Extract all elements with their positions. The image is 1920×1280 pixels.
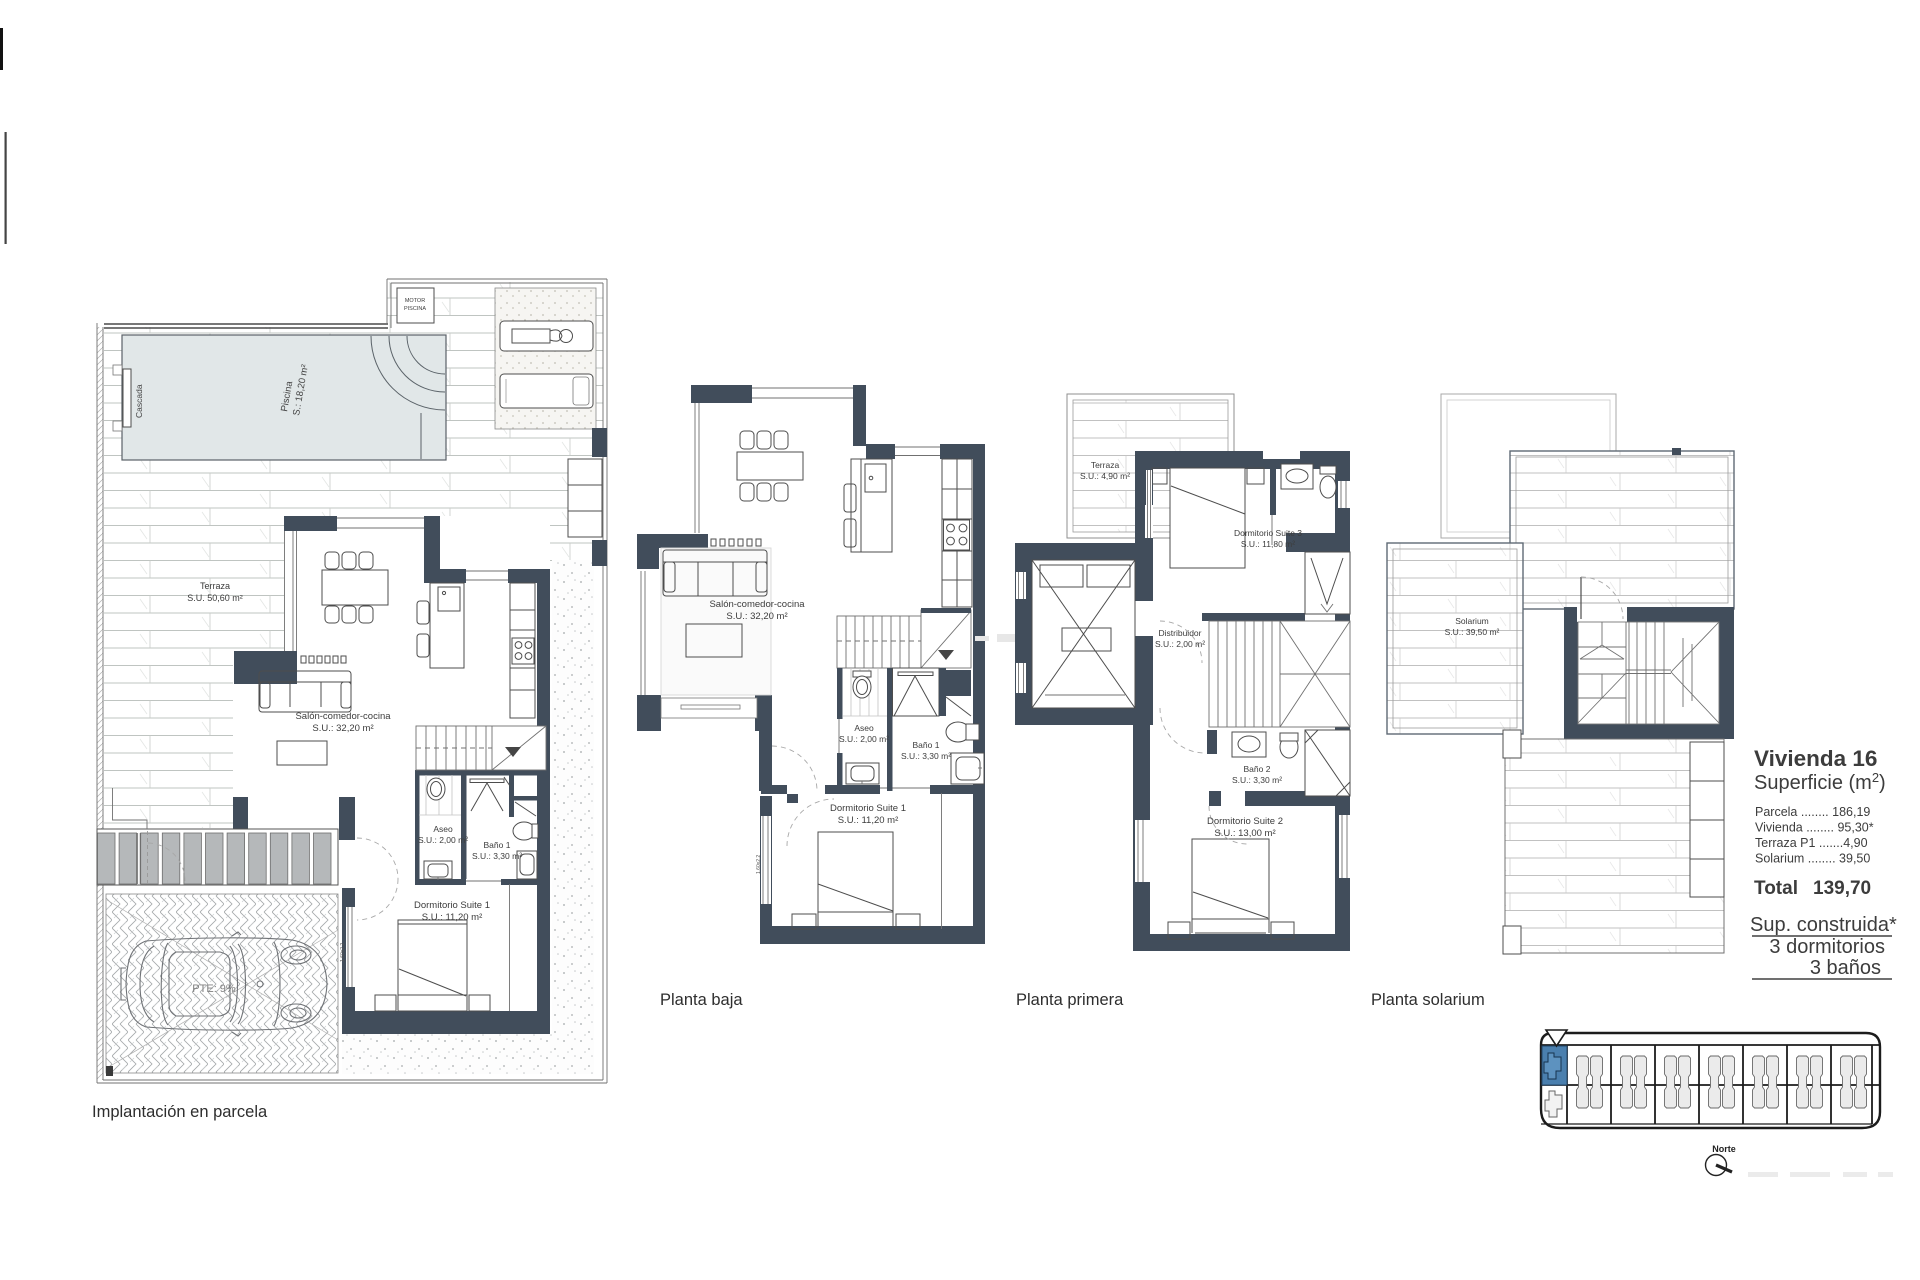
svg-text:S.U.: 2,00 m²: S.U.: 2,00 m² — [839, 734, 889, 744]
svg-text:Dormitorio Suite 1: Dormitorio Suite 1 — [830, 803, 906, 814]
svg-text:1.60x2.2: 1.60x2.2 — [756, 855, 762, 874]
svg-text:Solarium: Solarium — [1455, 616, 1489, 626]
svg-text:3 baños: 3 baños — [1810, 957, 1881, 979]
svg-text:Total: Total — [1754, 878, 1798, 899]
svg-text:S.U.: 2,00 m²: S.U.: 2,00 m² — [418, 835, 468, 845]
svg-text:139,70: 139,70 — [1813, 878, 1871, 899]
svg-text:3 dormitorios: 3 dormitorios — [1769, 936, 1885, 958]
svg-text:Baño 2: Baño 2 — [1244, 764, 1271, 774]
svg-text:Terraza P1 .......4,90: Terraza P1 .......4,90 — [1755, 836, 1868, 850]
svg-text:Dormitorio Suite 1: Dormitorio Suite 1 — [414, 900, 490, 911]
svg-text:Terraza: Terraza — [1091, 460, 1120, 470]
svg-text:Planta primera: Planta primera — [1016, 991, 1124, 1009]
svg-text:Planta baja: Planta baja — [660, 991, 743, 1009]
svg-text:Parcela ........ 186,19: Parcela ........ 186,19 — [1755, 805, 1870, 819]
svg-text:S.U.: 4,90 m²: S.U.: 4,90 m² — [1080, 471, 1130, 481]
svg-text:Salón-comedor-cocina: Salón-comedor-cocina — [295, 711, 391, 722]
svg-text:Superficie (m2): Superficie (m2) — [1754, 770, 1886, 795]
svg-text:Sup. construida*: Sup. construida* — [1750, 914, 1897, 936]
svg-text:S.U.: 3,30 m²: S.U.: 3,30 m² — [1232, 775, 1282, 785]
svg-text:Norte: Norte — [1712, 1144, 1736, 1154]
svg-text:PTE: 9%: PTE: 9% — [192, 983, 236, 995]
svg-text:Dormitorio Suite 3: Dormitorio Suite 3 — [1234, 528, 1302, 538]
svg-text:Dormitorio Suite 2: Dormitorio Suite 2 — [1207, 816, 1283, 827]
svg-text:MOTOR: MOTOR — [405, 298, 425, 304]
svg-text:Baño 1: Baño 1 — [913, 740, 940, 750]
svg-text:S.U.: 39,50 m²: S.U.: 39,50 m² — [1445, 627, 1500, 637]
svg-text:S.U.: 11,20 m²: S.U.: 11,20 m² — [838, 815, 899, 826]
svg-text:S.U.: 3,30 m²: S.U.: 3,30 m² — [472, 851, 522, 861]
svg-text:1.60x2.2: 1.60x2.2 — [340, 943, 346, 962]
svg-text:S.U.: 32,20 m²: S.U.: 32,20 m² — [726, 611, 787, 622]
svg-text:Planta solarium: Planta solarium — [1371, 991, 1485, 1009]
svg-text:S.U.: 11,20 m²: S.U.: 11,20 m² — [422, 912, 483, 923]
svg-text:Aseo: Aseo — [854, 723, 874, 733]
svg-text:S.U.: 13,00 m²: S.U.: 13,00 m² — [1214, 828, 1275, 839]
svg-text:Vivienda 16: Vivienda 16 — [1754, 746, 1877, 771]
svg-text:PISCINA: PISCINA — [404, 306, 426, 312]
svg-text:S.U.: 32,20 m²: S.U.: 32,20 m² — [312, 723, 373, 734]
svg-text:Salón-comedor-cocina: Salón-comedor-cocina — [709, 599, 805, 610]
svg-text:S.U.: 11,80 m²: S.U.: 11,80 m² — [1241, 539, 1295, 549]
svg-text:Vivienda ........ 95,30*: Vivienda ........ 95,30* — [1755, 821, 1874, 835]
svg-text:S.U.: 2,00 m²: S.U.: 2,00 m² — [1155, 639, 1205, 649]
svg-text:S.U.: 3,30 m²: S.U.: 3,30 m² — [901, 751, 951, 761]
svg-text:Implantación en parcela: Implantación en parcela — [92, 1103, 268, 1121]
svg-text:Terraza: Terraza — [200, 581, 230, 591]
svg-text:Baño 1: Baño 1 — [484, 840, 511, 850]
svg-text:Aseo: Aseo — [433, 824, 453, 834]
svg-text:Cascada: Cascada — [134, 384, 144, 418]
svg-text:S.U. 50,60 m²: S.U. 50,60 m² — [187, 593, 243, 603]
svg-text:Solarium ........ 39,50: Solarium ........ 39,50 — [1755, 852, 1870, 866]
svg-text:Distribuidor: Distribuidor — [1159, 628, 1202, 638]
